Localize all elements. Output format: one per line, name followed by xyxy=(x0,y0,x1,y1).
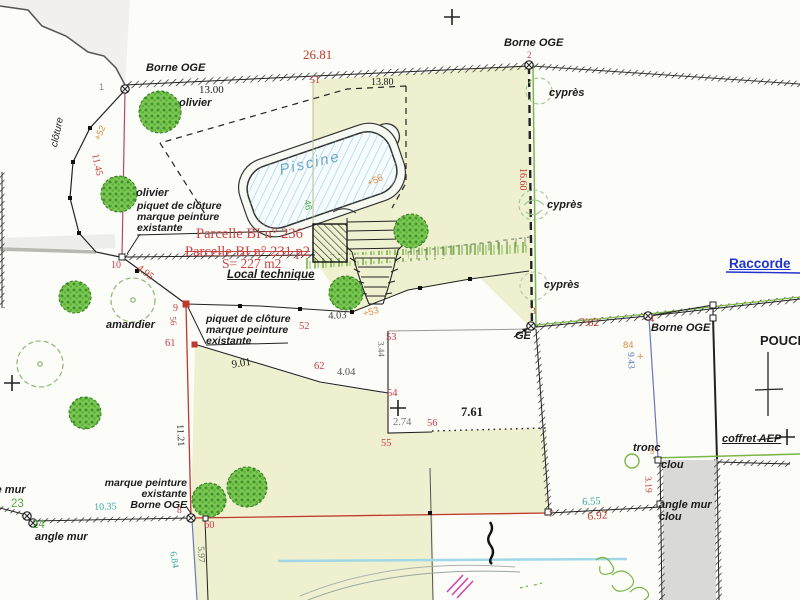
dim-10-35: 10.35 xyxy=(94,502,117,513)
coffret-aep-label: coffret AEP xyxy=(722,434,781,446)
cypres-3-label: cyprès xyxy=(544,280,579,292)
point-56-west-label: 56 xyxy=(168,316,178,326)
parcelle-236-label: Parcelle BI n° 236 xyxy=(196,227,303,242)
borne-oge-2-label: Borne OGE xyxy=(504,38,563,50)
survey-plan: Borne OGE126.815113.0013.80Borne OGE2cyp… xyxy=(0,0,800,600)
point-3-label: 3 xyxy=(531,308,536,318)
point-61-label: 61 xyxy=(165,338,176,349)
point-53-label: 53 xyxy=(386,332,397,343)
point-62-label: 62 xyxy=(314,361,325,372)
local-technique-label: Local technique xyxy=(227,269,315,281)
point-51-label: 51 xyxy=(310,76,320,87)
olivier-2-label: olivier xyxy=(136,188,168,200)
piscine-label: Piscine xyxy=(278,149,342,178)
dim-7-61: 7.61 xyxy=(461,406,483,419)
dim-11-21: 11.21 xyxy=(174,424,186,447)
dim-16-60: 16.60 xyxy=(517,168,528,191)
dim-3-19: 3.19 xyxy=(641,476,652,493)
dim-13-00: 13.00 xyxy=(199,85,224,97)
point-54-label: 54 xyxy=(387,388,398,399)
cloture-label: clôture xyxy=(50,117,67,149)
dim-4-95: 4.95 xyxy=(134,263,155,283)
borne-oge-4-label: Borne OGE xyxy=(651,323,710,335)
spot-height-56: +56 xyxy=(366,173,385,189)
angle-mur-label: angle mur xyxy=(35,532,88,544)
point-10-label: 10 xyxy=(111,261,121,272)
dim-3-44: 3.44 xyxy=(376,341,386,357)
dim-6-92: 6.92 xyxy=(587,509,608,523)
raccorde-label: Raccorde xyxy=(729,257,791,271)
cypres-2-label: cyprès xyxy=(547,200,582,212)
spot-height-84-plus: + xyxy=(637,352,643,364)
dim-13-80: 13.80 xyxy=(371,78,394,89)
dim-11-45: 11.45 xyxy=(89,153,104,177)
dim-4-03: 4.03 xyxy=(328,310,347,322)
dim-7-62: 7.62 xyxy=(579,317,599,329)
dim-2-74: 2.74 xyxy=(393,417,411,428)
dim-9-01: 9.01 xyxy=(231,357,252,371)
olivier-1-label: olivier xyxy=(179,98,211,110)
point-52-east-label: 52 xyxy=(299,321,310,332)
label-layer: Borne OGE126.815113.0013.80Borne OGE2cyp… xyxy=(0,0,800,600)
tronc-label: tronc xyxy=(633,443,661,455)
point-1-label: 1 xyxy=(99,83,104,92)
dim-4-04: 4.04 xyxy=(337,367,355,378)
dim-6-55: 6.55 xyxy=(582,496,601,508)
point-5-label: 5 xyxy=(650,448,654,456)
point-46-label: 46 xyxy=(301,199,313,211)
amandier-label: amandier xyxy=(106,320,155,332)
ge-label: GE xyxy=(515,331,531,343)
angle-mur-clou-label: angle mur clou xyxy=(659,500,712,523)
dim-5-97: 5.97 xyxy=(194,546,205,563)
spot-height-53: +53 xyxy=(362,306,380,320)
angle-mur-left-label: angle mur xyxy=(0,485,26,497)
point-24-label: 24 xyxy=(32,519,45,531)
spot-height-52: +52 xyxy=(93,124,108,142)
point-56-label: 56 xyxy=(427,418,438,429)
dim-6-84: 6.84 xyxy=(166,551,179,569)
borne-oge-1-label: Borne OGE xyxy=(146,63,205,75)
spot-height-84: 84 xyxy=(623,341,634,351)
cypres-1-label: cyprès xyxy=(549,88,584,100)
point-7-label: 7 xyxy=(549,511,554,521)
point-2-label: 2 xyxy=(527,51,532,60)
point-23-label: 23 xyxy=(11,498,24,510)
dim-26-81: 26.81 xyxy=(303,48,332,62)
point-9-label: 9 xyxy=(173,304,178,315)
piquet-note-2: piquet de clôture marque peinture exista… xyxy=(206,314,291,347)
point-55-label: 55 xyxy=(381,438,392,449)
point-60-label: 60 xyxy=(204,520,215,531)
dim-9-43: 9.43 xyxy=(624,352,635,369)
pouce-label: POUCE xyxy=(760,334,800,348)
clou-label: clou xyxy=(661,460,684,472)
